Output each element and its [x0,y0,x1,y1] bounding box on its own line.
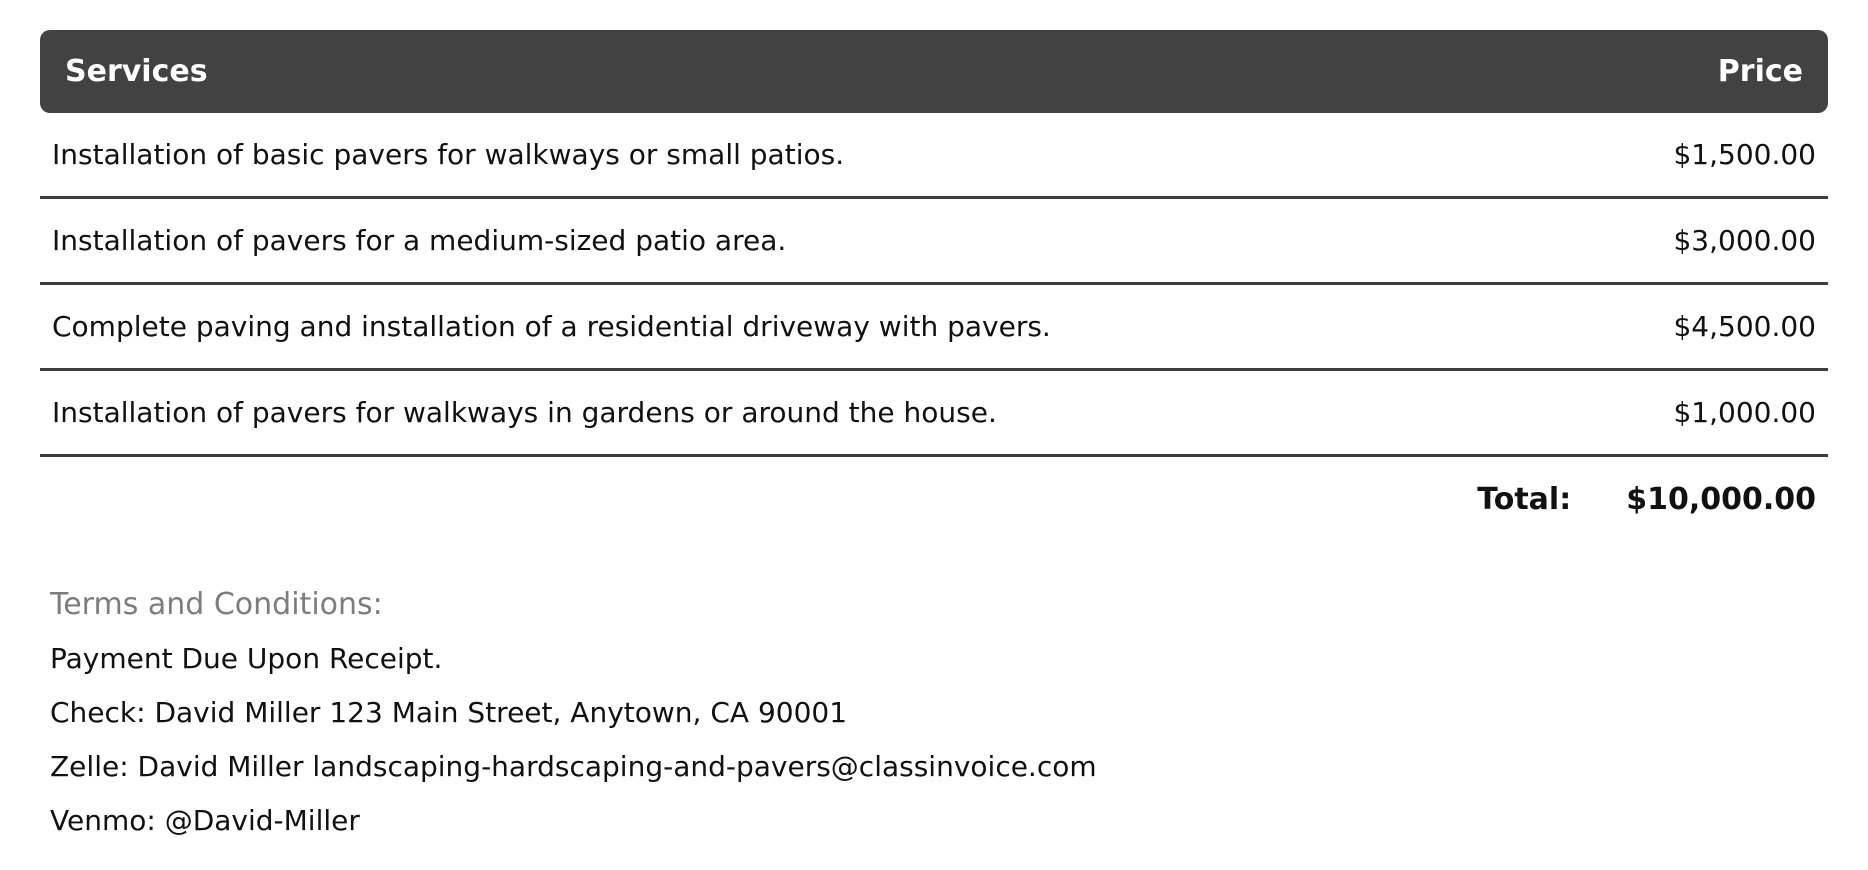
table-row: Installation of pavers for walkways in g… [40,371,1828,457]
column-header-price: Price [1718,54,1803,89]
terms-heading: Terms and Conditions: [50,578,1828,632]
service-description: Installation of pavers for walkways in g… [52,396,997,429]
service-price: $1,500.00 [1673,138,1816,171]
terms-section: Terms and Conditions: Payment Due Upon R… [50,578,1828,848]
total-row: Total: $10,000.00 [40,457,1828,542]
service-price: $3,000.00 [1673,224,1816,257]
table-row: Installation of pavers for a medium-size… [40,199,1828,285]
table-row: Installation of basic pavers for walkway… [40,113,1828,199]
column-header-services: Services [65,54,208,89]
services-table: Services Price Installation of basic pav… [40,30,1828,542]
service-description: Installation of pavers for a medium-size… [52,224,786,257]
terms-line-payment: Payment Due Upon Receipt. [50,632,1828,686]
invoice-document: Services Price Installation of basic pav… [40,30,1828,848]
table-header: Services Price [40,30,1828,113]
total-label: Total: [1477,482,1571,517]
table-row: Complete paving and installation of a re… [40,285,1828,371]
total-value: $10,000.00 [1626,482,1816,517]
terms-line-check: Check: David Miller 123 Main Street, Any… [50,686,1828,740]
service-description: Complete paving and installation of a re… [52,310,1051,343]
service-description: Installation of basic pavers for walkway… [52,138,844,171]
terms-line-venmo: Venmo: @David-Miller [50,794,1828,848]
terms-line-zelle: Zelle: David Miller landscaping-hardscap… [50,740,1828,794]
service-price: $4,500.00 [1673,310,1816,343]
service-price: $1,000.00 [1673,396,1816,429]
